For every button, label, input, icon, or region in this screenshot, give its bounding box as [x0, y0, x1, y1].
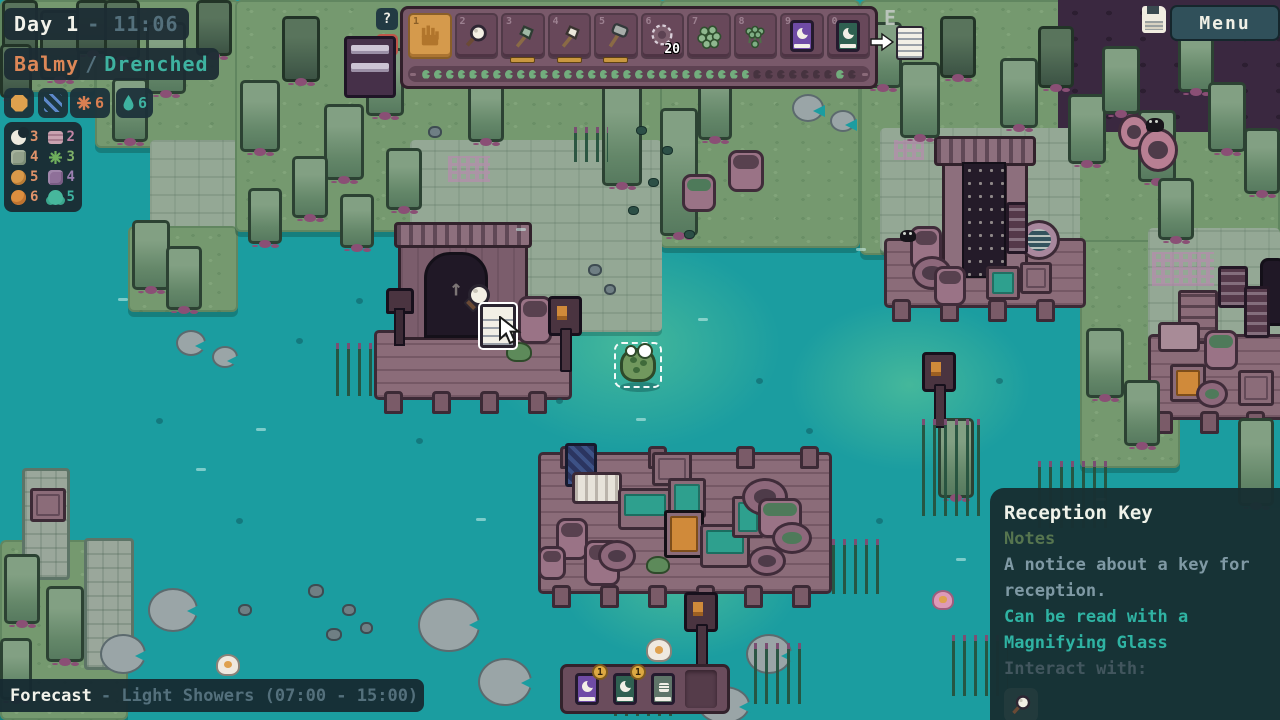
door-arrow-icon: ↑	[449, 276, 462, 301]
crate	[986, 266, 1020, 300]
water-speck	[416, 438, 423, 444]
lily-pad	[148, 588, 198, 632]
tree	[940, 16, 976, 78]
crate	[30, 488, 66, 522]
slot-number: 8	[739, 16, 745, 27]
wall-writing	[894, 140, 924, 160]
progress-dot	[753, 70, 761, 79]
pebble	[326, 628, 342, 641]
progress-dot	[623, 70, 631, 79]
lily-pad	[792, 94, 824, 122]
resource-count: 4	[30, 149, 38, 165]
resource-count: 3	[30, 129, 38, 145]
mailbox-post	[394, 308, 405, 346]
tree	[900, 62, 940, 138]
lily-pad	[418, 598, 480, 652]
tree	[248, 188, 282, 244]
resource-count: 2	[67, 129, 75, 145]
progress-dot	[517, 70, 525, 79]
tree	[1038, 26, 1074, 88]
resource-row: 5	[11, 169, 39, 185]
tree	[1000, 58, 1038, 128]
progress-dot	[848, 70, 856, 79]
pebble	[428, 126, 442, 138]
item-tooltip: Reception Key Notes A notice about a key…	[990, 488, 1280, 720]
progress-dot	[576, 70, 584, 79]
hotbar-slot-hand[interactable]: 1	[408, 13, 452, 59]
creature	[900, 230, 916, 242]
water-speck	[556, 398, 563, 404]
water-speck	[356, 298, 363, 304]
help-button[interactable]: ?	[376, 8, 398, 30]
magnifier-icon	[1009, 693, 1033, 717]
sun-badge	[4, 88, 34, 118]
dock-post	[792, 585, 811, 608]
progress-dot	[458, 70, 466, 79]
progress-dot	[588, 70, 596, 79]
resource-panel: 3 2 4 3 5 4 6 5	[4, 122, 82, 212]
progress-dot	[611, 70, 619, 79]
lily-pad	[176, 330, 206, 356]
slot-count: 20	[664, 42, 680, 57]
progress-dot	[789, 70, 797, 79]
save-icon	[1142, 6, 1166, 33]
game-screen: ↑	[0, 0, 1280, 720]
help-label: ?	[383, 11, 391, 27]
reeds	[574, 132, 608, 162]
tooltip-interact-tool	[1004, 688, 1038, 720]
tooltip-interact-label: Interact with:	[1004, 656, 1266, 682]
water-speck	[236, 518, 243, 524]
lotus-flower	[932, 590, 954, 610]
crescent-icon	[620, 681, 631, 692]
rain-icon	[44, 94, 62, 112]
tree	[468, 80, 504, 142]
bench	[1158, 322, 1200, 352]
locker	[1244, 286, 1270, 338]
forecast-label: Forecast	[10, 686, 92, 706]
purple-moss-item-icon	[48, 170, 63, 185]
resource-row: 5	[48, 189, 76, 205]
hotbar: 1 2 3 4 5 6	[400, 6, 878, 89]
dock-post	[1200, 411, 1219, 434]
progress-dot	[422, 70, 430, 79]
barrel	[1204, 330, 1238, 370]
resource-row: 3	[11, 129, 39, 145]
mallet-icon	[602, 22, 630, 50]
note-icon	[896, 26, 924, 60]
lily-pad	[830, 110, 856, 132]
mouse-cursor	[498, 316, 524, 346]
durability-bar	[510, 57, 535, 63]
pocket-bar: 1 1	[560, 664, 730, 714]
hotbar-slot-frogspawn[interactable]: 7	[687, 13, 731, 59]
progress-dot	[671, 70, 679, 79]
tree	[324, 104, 364, 180]
sprout-icon	[741, 22, 769, 50]
water-speck	[876, 518, 883, 524]
weather-badge: Balmy / Drenched	[4, 48, 219, 80]
water-speck	[296, 338, 303, 344]
log-item-icon	[48, 131, 63, 144]
water-sparkle	[476, 518, 486, 521]
progress-dot	[682, 70, 690, 79]
hotbar-slots: 1 2 3 4 5 6	[408, 13, 870, 59]
day-label: Day 1	[14, 12, 79, 36]
tooltip-category: Notes	[1004, 526, 1266, 552]
progress-dot	[742, 70, 750, 79]
progress-dot	[836, 70, 844, 79]
slot-number: 4	[553, 16, 559, 27]
reeds	[922, 424, 986, 516]
small-critter	[628, 206, 639, 215]
pebble	[238, 604, 252, 616]
hotbar-slot-magnifier[interactable]: 2	[455, 13, 499, 59]
dock-post	[384, 391, 403, 414]
barrel-ring	[598, 540, 636, 572]
tadpole-book-icon	[836, 20, 860, 52]
water-speck	[756, 378, 763, 384]
pebble	[604, 284, 616, 295]
quantity-badge: 1	[630, 664, 646, 680]
hotbar-slot-net[interactable]: 6 20	[641, 13, 685, 59]
progress-dot	[446, 70, 454, 79]
pocket-slot-empty[interactable]	[685, 670, 717, 708]
progress-dot	[481, 70, 489, 79]
quantity-badge: 1	[592, 664, 608, 680]
weather-primary: Balmy	[14, 52, 79, 76]
small-critter	[662, 146, 673, 155]
dock-post	[892, 299, 911, 322]
temperature-icon	[76, 95, 92, 111]
pebble	[360, 622, 373, 634]
sign-post	[696, 624, 708, 668]
tooltip-description: A notice about a key for reception.	[1004, 552, 1266, 604]
lily-pad	[478, 658, 532, 706]
magnifier-icon	[468, 284, 490, 306]
barrel	[538, 546, 566, 580]
interact-key-label: E	[884, 6, 896, 30]
barrel-ring	[1138, 128, 1178, 172]
small-critter	[648, 178, 659, 187]
ruin-doorway[interactable]	[962, 162, 1006, 278]
tree	[340, 194, 374, 248]
progress-dot	[659, 70, 667, 79]
moisture-badge: 6	[116, 88, 153, 118]
lily-pad	[100, 634, 146, 674]
pocket-slot-grey-book[interactable]	[647, 670, 679, 708]
grey-book-icon	[651, 673, 675, 705]
progress-dot	[824, 70, 832, 79]
forecast-bar: Forecast - Light Showers (07:00 - 15:00)	[0, 679, 424, 712]
tree	[46, 586, 84, 662]
tree	[1124, 380, 1160, 446]
water-sparkle	[698, 318, 708, 321]
hotbar-slot-moon-book[interactable]: 9	[780, 13, 824, 59]
tree	[602, 82, 642, 186]
weather-separator: /	[85, 52, 98, 76]
progress-dot	[540, 70, 548, 79]
resource-count: 4	[67, 169, 75, 185]
hotbar-slot-axe[interactable]: 4	[548, 13, 592, 59]
creature	[1146, 118, 1164, 132]
plant-item-icon	[48, 150, 63, 165]
barrel	[682, 174, 716, 212]
barrel	[934, 266, 966, 306]
reeds	[336, 348, 380, 396]
dock-post	[528, 391, 547, 414]
moon-book-icon	[790, 20, 814, 52]
slot-number: 2	[460, 16, 466, 27]
sun-icon	[11, 95, 28, 112]
dock-post	[552, 585, 571, 608]
lines-icon	[659, 683, 669, 692]
arrow-right-icon	[870, 32, 894, 52]
progress-dot	[647, 70, 655, 79]
resource-row: 2	[48, 129, 76, 145]
small-frog	[646, 556, 670, 574]
moss-item-icon	[11, 150, 26, 165]
water-sparkle	[956, 558, 966, 561]
dock-post	[648, 585, 667, 608]
tooltip-title: Reception Key	[1004, 500, 1266, 526]
cabinet	[344, 36, 396, 98]
pocket-slot-moon-book[interactable]: 1	[571, 670, 603, 708]
hotbar-slot-tadpole-book[interactable]: 0	[827, 13, 871, 59]
tree	[1102, 46, 1140, 114]
crescent-icon	[843, 28, 854, 39]
teal-item-icon	[48, 190, 63, 205]
pocket-slot-teal-book[interactable]: 1	[609, 670, 641, 708]
standing-sign	[1006, 202, 1028, 254]
barrel-ring	[1196, 380, 1228, 408]
dock-post	[744, 585, 763, 608]
tree	[132, 220, 170, 290]
menu-button[interactable]: Menu	[1170, 5, 1280, 41]
tree	[1244, 128, 1280, 194]
water-glow	[790, 300, 1030, 470]
tree	[1068, 94, 1106, 164]
resource-count: 5	[30, 169, 38, 185]
pebble	[588, 264, 602, 276]
hatchet-icon	[509, 22, 537, 50]
axe-icon	[555, 22, 583, 50]
tooltip-hint: Can be read with a Magnifying Glass	[1004, 604, 1266, 656]
progress-dot	[600, 70, 608, 79]
lily-pad	[212, 346, 238, 368]
dock-post	[480, 391, 499, 414]
tree	[1208, 82, 1246, 152]
dock-post	[432, 391, 451, 414]
dock-post	[736, 446, 755, 469]
tree	[292, 156, 328, 218]
progress-dot	[493, 70, 501, 79]
tree	[1158, 178, 1194, 240]
time-label: - 11:06	[87, 12, 178, 36]
hand-icon	[416, 22, 444, 50]
resource-row: 3	[48, 149, 76, 165]
slot-number: 5	[599, 16, 605, 27]
progress-dot	[694, 70, 702, 79]
progress-dot	[469, 70, 477, 79]
magnifier-icon	[462, 22, 490, 50]
moisture-icon	[122, 95, 135, 111]
pebble	[342, 604, 356, 616]
progress-dot	[813, 70, 821, 79]
crate	[1020, 262, 1052, 294]
slot-number: 6	[646, 16, 652, 27]
forecast-text: - Light Showers (07:00 - 15:00)	[101, 686, 418, 706]
water-sparkle	[856, 248, 866, 251]
hotbar-slot-hatchet[interactable]: 3	[501, 13, 545, 59]
temperature-value: 6	[95, 94, 104, 112]
progress-dot	[777, 70, 785, 79]
dock-post	[1036, 299, 1055, 322]
resource-row: 4	[11, 149, 39, 165]
hotbar-slot-sprouts[interactable]: 8	[734, 13, 778, 59]
tree	[4, 554, 40, 624]
menu-label: Menu	[1199, 13, 1250, 34]
temperature-badge: 6	[70, 88, 110, 118]
progress-dot	[765, 70, 773, 79]
progress-dot	[529, 70, 537, 79]
building-lintel	[394, 222, 532, 248]
hotbar-slot-mallet[interactable]: 5	[594, 13, 638, 59]
weather-secondary: Drenched	[104, 52, 208, 76]
pebble	[308, 584, 324, 598]
moon-item-icon	[11, 130, 26, 145]
progress-dot	[564, 70, 572, 79]
progress-dot	[635, 70, 643, 79]
slot-number: 3	[506, 16, 512, 27]
water-sparkle	[256, 428, 266, 431]
dock-post	[600, 585, 619, 608]
progress-dot	[505, 70, 513, 79]
moisture-value: 6	[138, 94, 147, 112]
small-critter	[636, 126, 647, 135]
progress-dot	[730, 70, 738, 79]
water-sparkle	[516, 228, 526, 231]
wall-writing	[1152, 252, 1214, 286]
frog-body	[620, 348, 656, 382]
tree	[1086, 328, 1124, 398]
frog-character[interactable]	[614, 342, 662, 388]
day-time-badge: Day 1 - 11:06	[4, 8, 189, 40]
sign-post	[560, 328, 572, 372]
resource-count: 5	[67, 189, 75, 205]
wall-writing	[448, 156, 490, 182]
barrel	[728, 150, 764, 192]
slot-number: 1	[413, 16, 419, 27]
stone-path	[150, 140, 238, 232]
frogspawn-icon	[695, 22, 723, 50]
highlighted-box[interactable]	[664, 510, 704, 558]
tree	[166, 246, 202, 310]
water-speck	[156, 418, 163, 424]
progress-dot	[552, 70, 560, 79]
orange-item-icon	[11, 190, 26, 205]
slot-number: 7	[692, 16, 698, 27]
rain-badge	[38, 88, 68, 118]
resource-count: 3	[67, 149, 75, 165]
amber-item-icon	[11, 170, 26, 185]
reeds	[832, 544, 884, 594]
white-bench	[572, 472, 622, 504]
dock-post	[800, 446, 819, 469]
water-sparkle	[196, 468, 206, 471]
water-sparkle	[636, 418, 646, 421]
reeds	[754, 648, 804, 704]
small-critter	[684, 230, 695, 239]
tree	[660, 108, 698, 236]
progress-dot	[434, 70, 442, 79]
lotus-flower	[646, 638, 672, 662]
durability-bar	[557, 57, 582, 63]
dock-post	[988, 299, 1007, 322]
water-speck	[996, 378, 1003, 384]
crescent-icon	[582, 681, 593, 692]
tree	[386, 148, 422, 210]
hotbar-progress-dots	[408, 66, 870, 82]
resource-row: 4	[48, 169, 76, 185]
tree	[282, 16, 320, 82]
tree	[240, 80, 280, 152]
water-speck	[806, 428, 813, 434]
progress-dot	[706, 70, 714, 79]
lotus-flower	[216, 654, 240, 676]
durability-bar	[603, 57, 628, 63]
resource-row: 6	[11, 189, 39, 205]
barrel-ring	[748, 546, 786, 576]
crescent-icon	[797, 28, 808, 39]
water-sparkle	[118, 298, 128, 301]
resource-count: 6	[30, 189, 38, 205]
drawer	[1238, 370, 1274, 406]
progress-dot	[801, 70, 809, 79]
progress-dot	[718, 70, 726, 79]
